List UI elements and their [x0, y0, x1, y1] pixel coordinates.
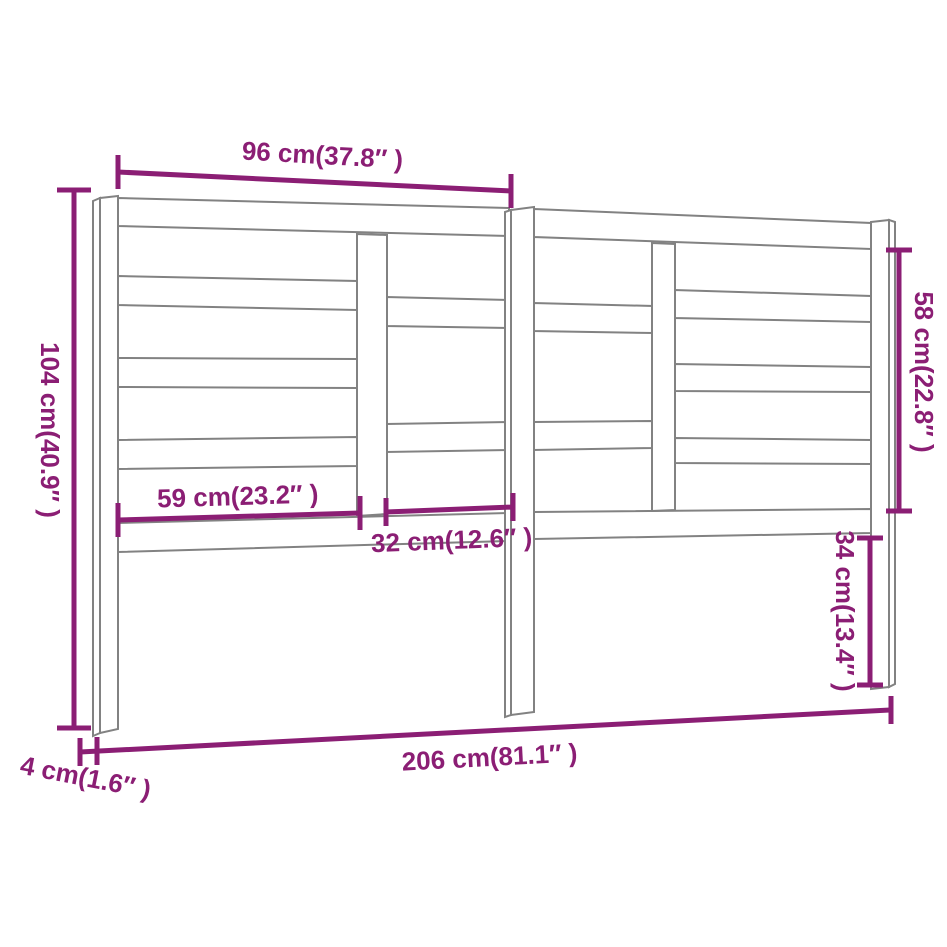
- label-left-height: 104 cm(40.9″ ): [35, 342, 65, 518]
- right-post-side-face: [889, 220, 895, 687]
- slat-right-bay-2: [674, 364, 871, 392]
- slat-right-bay-3: [674, 438, 871, 464]
- label-right-upper-height: 58 cm(22.8″ ): [909, 291, 939, 452]
- vertical-connector-right: [652, 243, 675, 511]
- dimension-top-width-line: [118, 172, 511, 191]
- slat-right-inner-bay-1: [533, 303, 653, 333]
- label-top-width: 96 cm(37.8″ ): [241, 136, 404, 175]
- left-post: [100, 196, 118, 733]
- label-total-width: 206 cm(81.1″ ): [401, 737, 578, 776]
- top-rail-right: [534, 209, 871, 249]
- dimension-mid-center-line: [386, 507, 513, 512]
- label-mid-left-width: 59 cm(23.2″ ): [157, 478, 319, 513]
- bottom-rail-right: [534, 509, 871, 539]
- headboard-dimension-drawing: 96 cm(37.8″ ) 104 cm(40.9″ ) 58 cm(22.8″…: [0, 0, 947, 947]
- slat-left-bay-1: [118, 276, 357, 310]
- slat-left-bay-3: [118, 437, 357, 469]
- right-post: [871, 220, 889, 689]
- slat-left-inner-bay-1: [386, 297, 509, 328]
- slat-left-bay-2: [118, 358, 357, 388]
- dimension-diagram: 96 cm(37.8″ ) 104 cm(40.9″ ) 58 cm(22.8″…: [0, 0, 947, 947]
- label-leg-depth: 4 cm(1.6″ ): [18, 750, 154, 805]
- center-post: [511, 207, 534, 715]
- slat-left-inner-bay-2: [386, 422, 509, 452]
- vertical-connector-left: [357, 234, 387, 516]
- slat-right-inner-bay-2: [533, 421, 653, 450]
- left-post-side-face: [93, 198, 100, 736]
- headboard-drawing: [93, 196, 895, 736]
- top-rail-left: [118, 198, 509, 236]
- slat-right-bay-1: [674, 290, 871, 322]
- label-right-lower-height: 34 cm(13.4″ ): [830, 530, 860, 691]
